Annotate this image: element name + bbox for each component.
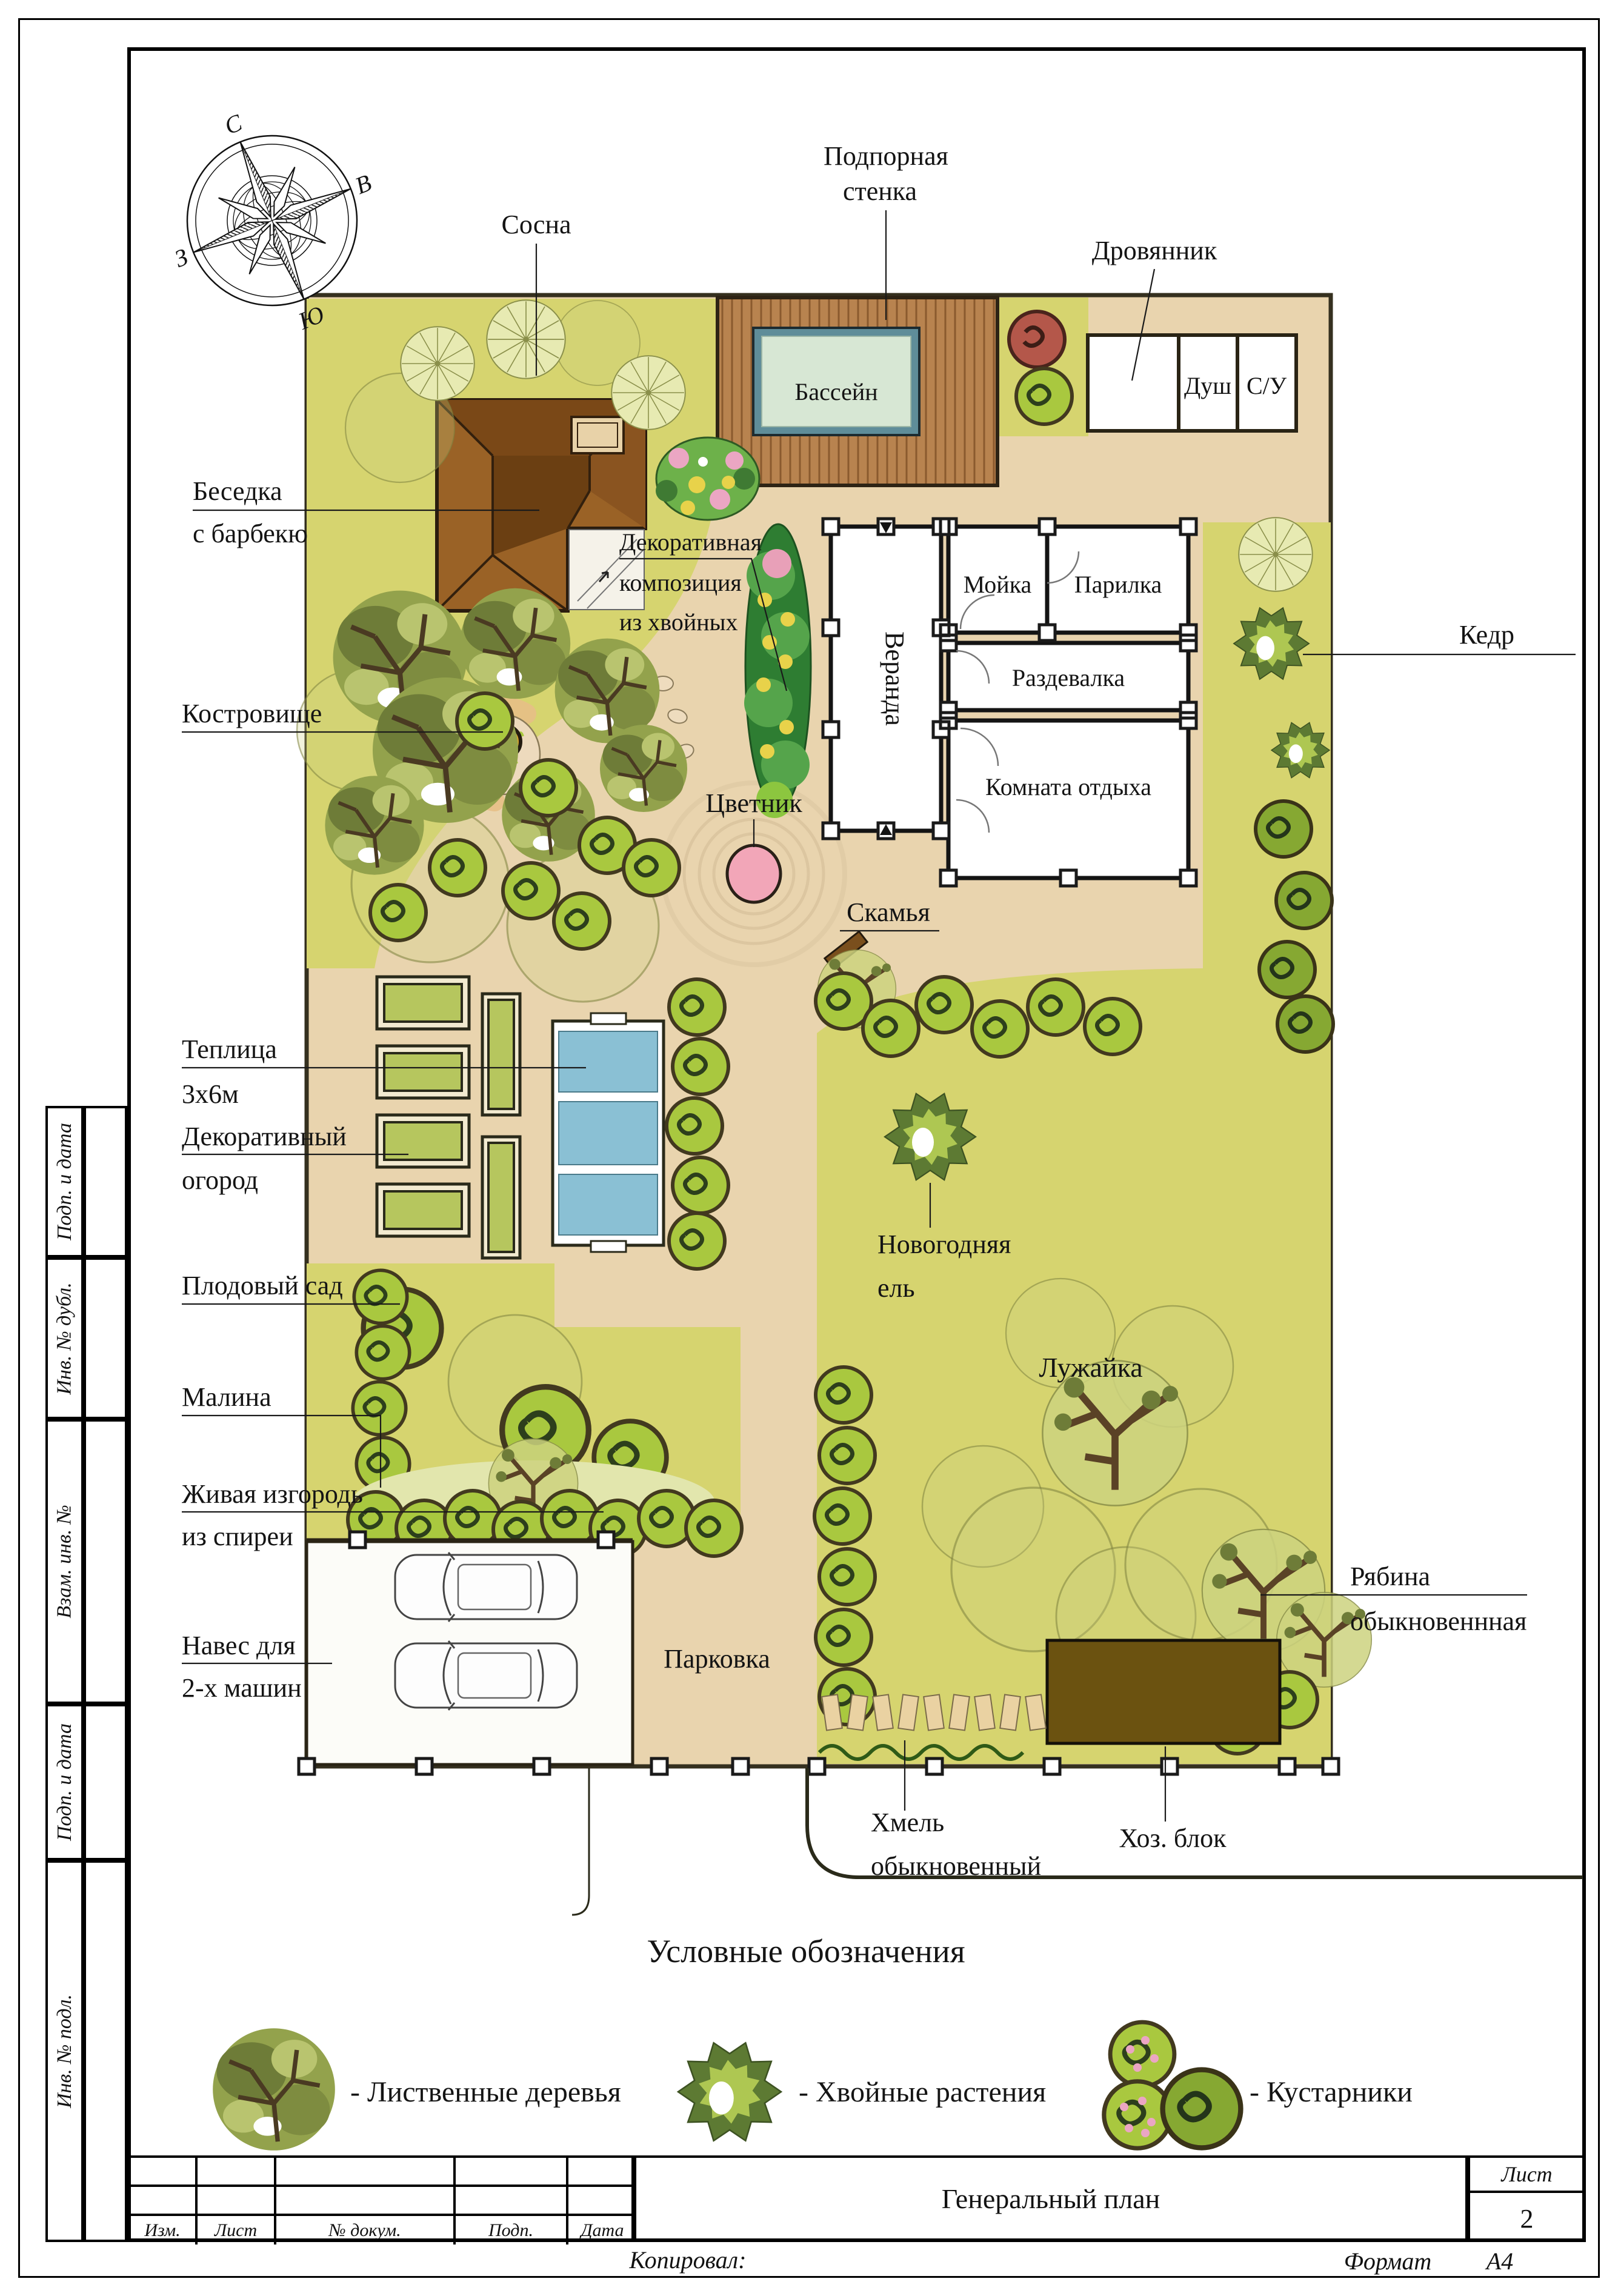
mixed-flowerbed: [656, 438, 759, 520]
label-conifer-comp-1: Декоративная: [619, 528, 762, 556]
drawing-title: Генеральный план: [634, 2155, 1468, 2242]
label-kitchen-garden-1: Декоративный: [182, 1122, 347, 1151]
label-spruce-2: ель: [877, 1273, 915, 1303]
label-flower-garden: Цветник: [705, 788, 802, 818]
label-spruce-1: Новогодняя: [877, 1230, 1011, 1259]
label-raspberry: Малина: [182, 1382, 271, 1412]
col-podp: Подп.: [456, 2216, 566, 2244]
label-orchard: Плодовый сад: [182, 1271, 343, 1300]
sidebar-cell-podp-data-1: Подп. и дата: [45, 1106, 84, 1257]
compass-north: С: [221, 108, 247, 140]
legend-title: Условные обозначения: [647, 1933, 965, 1969]
carport: [307, 1542, 633, 1765]
format-label: Формат: [1321, 2247, 1454, 2275]
label-hops-1: Хмель: [871, 1808, 944, 1837]
label-parilka: Парилка: [1074, 571, 1162, 598]
gazebo: [437, 400, 645, 611]
col-izm: Изм.: [130, 2216, 195, 2244]
sidebar-blank-2: [84, 1257, 127, 1419]
legend-conifer-icon: [678, 2043, 781, 2141]
label-cedar: Кедр: [1459, 620, 1514, 650]
col-ndok: № докум.: [276, 2216, 453, 2244]
label-pine: Сосна: [501, 210, 571, 239]
label-greenhouse-1: Теплица: [182, 1034, 277, 1064]
label-shed: Хоз. блок: [1119, 1823, 1227, 1853]
sidebar-blank-4: [84, 1704, 127, 1860]
label-veranda: Веранда: [880, 631, 910, 726]
sidebar-cell-vzam-inv: Взам. инв. №: [45, 1419, 84, 1704]
label-retaining-wall-2: стенка: [843, 176, 917, 206]
site-plan: Сосна Подпорная стенка Дровянник Бассейн…: [0, 0, 1618, 2296]
kopiroval-note: Копировал:: [536, 2246, 839, 2274]
label-parking: Парковка: [664, 1644, 770, 1674]
revision-table: Изм. Лист № докум. Подп. Дата: [127, 2155, 634, 2242]
sidebar-cell-inv-podl: Инв. № подл.: [45, 1860, 84, 2242]
woodshed-box: [1088, 335, 1179, 431]
label-wc: С/У: [1247, 372, 1287, 399]
label-rowan-2: обыкновеннная: [1350, 1606, 1526, 1636]
sheet-number: 2: [1470, 2193, 1583, 2244]
label-gazebo-2: с барбекю: [193, 519, 308, 548]
format-value: А4: [1454, 2247, 1545, 2275]
label-conifer-comp-2: композиция: [619, 569, 742, 596]
sheet-cell: Лист 2: [1468, 2155, 1586, 2242]
label-razdevalka: Раздевалка: [1012, 664, 1125, 691]
label-carport-2: 2-х машин: [182, 1673, 302, 1703]
legend-item-shrubs: - Кустарники: [1250, 2076, 1413, 2108]
label-firepit: Костровище: [182, 699, 322, 728]
label-retaining-wall-1: Подпорная: [824, 141, 948, 171]
label-hedge-2: из спиреи: [182, 1522, 293, 1551]
label-moika: Мойка: [964, 571, 1032, 598]
legend-shrub-icon: [1104, 2022, 1241, 2148]
label-conifer-comp-3: из хвойных: [619, 608, 738, 636]
label-bench: Скамья: [847, 897, 930, 927]
label-shower: Душ: [1184, 372, 1231, 399]
label-pool: Бассейн: [794, 378, 877, 405]
sidebar-blank-3: [84, 1419, 127, 1704]
title-block: Изм. Лист № докум. Подп. Дата Генеральны…: [127, 2155, 1586, 2242]
sidebar-blank-1: [84, 1106, 127, 1257]
driveway-edge: [572, 1768, 589, 1915]
sidebar-cell-podp-data-2: Подп. и дата: [45, 1704, 84, 1860]
label-kitchen-garden-2: огород: [182, 1165, 258, 1195]
legend-deciduous-icon: [213, 2028, 335, 2151]
label-lawn: Лужайка: [1039, 1352, 1142, 1383]
label-rowan-1: Рябина: [1350, 1562, 1430, 1591]
drawing-sheet: Сосна Подпорная стенка Дровянник Бассейн…: [0, 0, 1618, 2296]
label-greenhouse-2: 3х6м: [182, 1079, 239, 1109]
col-list: Лист: [198, 2216, 274, 2244]
flowerbed-pink: [727, 845, 781, 902]
utility-shed: [1047, 1640, 1280, 1743]
label-carport-1: Навес для: [182, 1631, 296, 1660]
sheet-label: Лист: [1470, 2158, 1583, 2193]
label-hops-2: обыкновенный: [871, 1851, 1041, 1881]
label-hedge-1: Живая изгородь: [182, 1479, 363, 1509]
legend-item-deciduous: - Лиственные деревья: [350, 2076, 621, 2108]
car-icon: [395, 1552, 577, 1622]
shrub-icon: [1016, 368, 1072, 424]
sidebar-blank-5: [84, 1860, 127, 2242]
sidebar-cell-inv-dubl: Инв. № дубл.: [45, 1257, 84, 1419]
col-data: Дата: [568, 2216, 636, 2244]
greenhouse: [553, 1013, 664, 1252]
car-icon: [395, 1641, 577, 1710]
legend-item-conifer: - Хвойные растения: [799, 2076, 1046, 2108]
label-woodshed: Дровянник: [1092, 236, 1217, 265]
label-komnata: Комната отдыха: [985, 773, 1151, 800]
compass-east: В: [351, 168, 376, 199]
label-gazebo-1: Беседка: [193, 476, 282, 506]
legend: Условные обозначения - Лиственные деревь…: [213, 1933, 1413, 2151]
compass-west: З: [170, 243, 191, 273]
